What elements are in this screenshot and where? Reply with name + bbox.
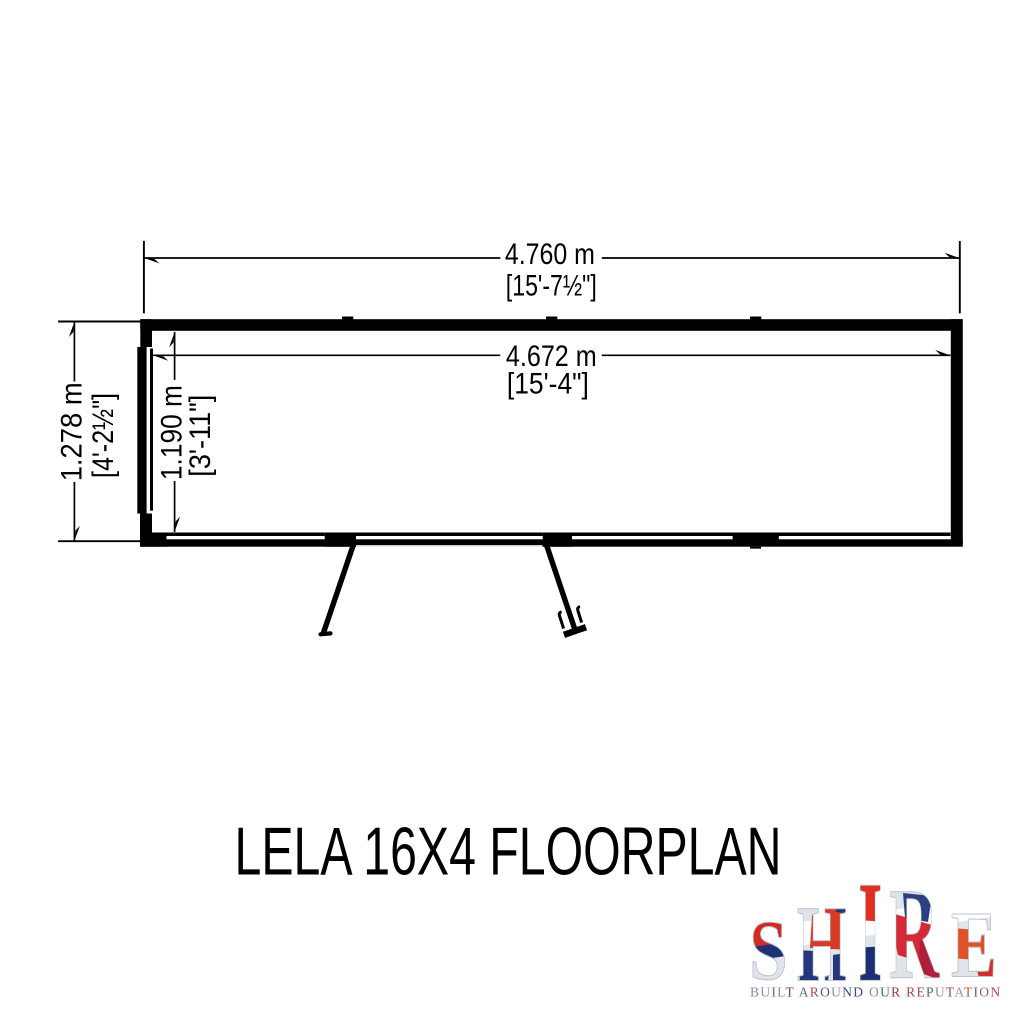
svg-text:BUILT AROUND OUR REPUTATION: BUILT AROUND OUR REPUTATION [750, 985, 1001, 1000]
svg-text:[15'-7½"]: [15'-7½"] [506, 270, 597, 303]
svg-text:S: S [749, 903, 787, 998]
svg-text:[15'-4"]: [15'-4"] [507, 367, 589, 400]
svg-text:[3'-11"]: [3'-11"] [184, 395, 217, 477]
svg-text:1.278 m: 1.278 m [56, 382, 89, 481]
svg-text:4.760 m: 4.760 m [505, 238, 595, 271]
svg-text:LELA 16X4 FLOORPLAN: LELA 16X4 FLOORPLAN [235, 814, 782, 890]
svg-text:E: E [951, 893, 997, 998]
svg-text:[4'-2½"]: [4'-2½"] [87, 393, 120, 478]
